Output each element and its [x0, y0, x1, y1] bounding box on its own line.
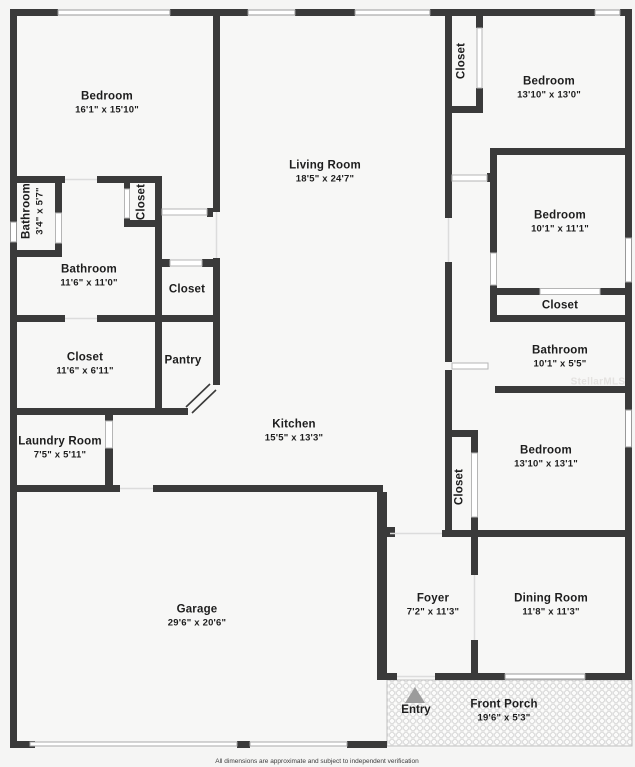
label-laundry-room: Laundry Room 7'5" x 5'11" [18, 434, 102, 461]
room-dims: 3'4" x 5'7" [34, 183, 46, 239]
room-name: Bathroom [19, 183, 34, 239]
label-bathroom-right: Bathroom 10'1" x 5'5" [532, 343, 588, 370]
room-dims: 10'1" x 11'1" [531, 223, 589, 235]
label-closet-master: Closet [135, 184, 150, 220]
room-name: Closet [56, 350, 113, 365]
room-dims: 13'10" x 13'1" [514, 458, 578, 470]
room-name: Closet [169, 283, 205, 298]
room-name: Front Porch [470, 697, 537, 712]
label-bathroom-master: Bathroom 11'6" x 11'0" [60, 262, 117, 289]
label-closet-walk-in: Closet 11'6" x 6'11" [56, 350, 113, 377]
label-bedroom-master: Bedroom 16'1" x 15'10" [75, 89, 139, 116]
label-garage: Garage 29'6" x 20'6" [168, 602, 226, 629]
label-living-room: Living Room 18'5" x 24'7" [289, 158, 361, 185]
room-dims: 29'6" x 20'6" [168, 617, 226, 629]
label-entry: Entry [401, 704, 430, 716]
label-closet-hall: Closet [169, 283, 205, 298]
label-bedroom-top-right: Bedroom 13'10" x 13'0" [517, 74, 581, 101]
room-name: Bedroom [75, 89, 139, 104]
room-dims: 15'5" x 13'3" [265, 432, 323, 444]
room-dims: 18'5" x 24'7" [289, 173, 361, 185]
room-name: Closet [542, 299, 578, 314]
label-closet-right-middle: Closet [542, 299, 578, 314]
room-dims: 11'6" x 11'0" [60, 277, 117, 289]
room-name: Bedroom [514, 443, 578, 458]
room-name: Kitchen [265, 417, 323, 432]
label-closet-top-right: Closet [455, 43, 470, 79]
room-dims: 13'10" x 13'0" [517, 89, 581, 101]
room-dims: 10'1" x 5'5" [532, 358, 588, 370]
label-dining-room: Dining Room 11'8" x 11'3" [514, 591, 588, 618]
room-name: Bedroom [531, 208, 589, 223]
room-name: Bathroom [532, 343, 588, 358]
room-dims: 11'6" x 6'11" [56, 365, 113, 377]
room-name: Laundry Room [18, 434, 102, 449]
room-dims: 7'2" x 11'3" [407, 606, 459, 618]
garage-doors [30, 742, 347, 746]
floor-area [10, 9, 632, 748]
room-name: Closet [455, 43, 470, 79]
label-kitchen: Kitchen 15'5" x 13'3" [265, 417, 323, 444]
label-closet-bottom-right: Closet [453, 469, 468, 505]
room-dims: 7'5" x 5'11" [18, 449, 102, 461]
room-name: Bedroom [517, 74, 581, 89]
label-foyer: Foyer 7'2" x 11'3" [407, 591, 459, 618]
room-dims: 16'1" x 15'10" [75, 104, 139, 116]
floorplan-page: Bedroom 16'1" x 15'10" Living Room 18'5"… [0, 0, 635, 767]
label-bedroom-right-middle: Bedroom 10'1" x 11'1" [531, 208, 589, 235]
room-name: Closet [135, 184, 150, 220]
room-name: Living Room [289, 158, 361, 173]
room-name: Garage [168, 602, 226, 617]
label-bedroom-bottom-right: Bedroom 13'10" x 13'1" [514, 443, 578, 470]
room-name: Dining Room [514, 591, 588, 606]
room-name: Closet [453, 469, 468, 505]
label-bathroom-small: Bathroom 3'4" x 5'7" [19, 183, 46, 239]
room-dims: 11'8" x 11'3" [514, 606, 588, 618]
label-pantry: Pantry [165, 354, 202, 369]
disclaimer-text: All dimensions are approximate and subje… [215, 758, 418, 765]
room-name: Foyer [407, 591, 459, 606]
room-name: Bathroom [60, 262, 117, 277]
watermark: StellarMLS [571, 377, 626, 388]
room-dims: 19'6" x 5'3" [470, 712, 537, 724]
label-front-porch: Front Porch 19'6" x 5'3" [470, 697, 537, 724]
room-name: Pantry [165, 354, 202, 369]
